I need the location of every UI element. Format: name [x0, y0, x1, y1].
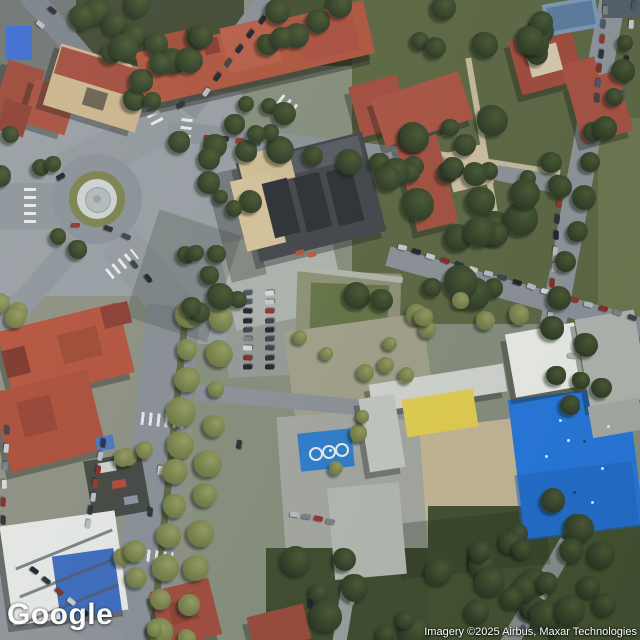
- tree: [239, 190, 262, 213]
- person: [567, 439, 570, 442]
- tree: [163, 494, 187, 518]
- tree: [465, 599, 490, 624]
- tree: [177, 47, 203, 73]
- tree: [235, 140, 257, 162]
- tree: [546, 366, 566, 386]
- car: [242, 365, 251, 370]
- car: [242, 318, 251, 323]
- tree: [167, 431, 195, 459]
- car: [603, 6, 608, 15]
- tree: [469, 541, 490, 562]
- tree: [187, 520, 214, 547]
- tree: [68, 240, 87, 259]
- tree: [5, 307, 27, 329]
- tree: [293, 330, 307, 344]
- tree: [605, 88, 623, 106]
- person: [601, 467, 604, 470]
- person: [573, 491, 576, 494]
- tree: [400, 124, 428, 152]
- person: [329, 449, 332, 452]
- car: [3, 461, 8, 470]
- tree: [303, 146, 323, 166]
- court-circle-3: [335, 443, 349, 457]
- tree: [442, 157, 464, 179]
- tree: [144, 92, 161, 109]
- google-logo[interactable]: Google: [7, 598, 113, 632]
- person: [559, 419, 562, 422]
- tree: [329, 461, 343, 475]
- imagery-attribution: Imagery ©2025 Airbus, Maxar Technologies: [424, 626, 637, 638]
- tree: [152, 554, 179, 581]
- car: [242, 355, 251, 360]
- tree: [271, 27, 292, 48]
- tree: [207, 245, 225, 263]
- tree: [306, 9, 330, 33]
- car: [631, 1, 636, 10]
- car: [147, 507, 152, 516]
- car: [264, 290, 273, 295]
- tree: [193, 483, 218, 508]
- tree: [547, 286, 572, 311]
- tree: [209, 307, 232, 330]
- car: [264, 337, 273, 342]
- tree: [463, 162, 486, 185]
- person: [545, 455, 548, 458]
- car: [598, 49, 604, 59]
- tree: [69, 4, 95, 30]
- tree: [516, 26, 545, 55]
- tree: [341, 574, 368, 601]
- car: [629, 19, 634, 28]
- crosswalk: [24, 188, 36, 224]
- tree: [356, 410, 369, 423]
- tree: [378, 357, 394, 373]
- tree: [541, 488, 565, 512]
- tree: [273, 102, 296, 125]
- tree: [320, 347, 333, 360]
- tree: [555, 251, 576, 272]
- car: [90, 492, 96, 501]
- tree: [588, 541, 615, 568]
- tree: [560, 395, 579, 414]
- car: [242, 346, 251, 351]
- tree: [114, 449, 131, 466]
- tree: [174, 367, 200, 393]
- car: [289, 511, 298, 517]
- tree: [126, 567, 147, 588]
- tree: [166, 397, 196, 427]
- tree: [50, 228, 67, 245]
- tree: [475, 566, 506, 597]
- roundabout-center: [93, 195, 101, 203]
- person: [607, 425, 610, 428]
- tree: [187, 245, 203, 261]
- car: [85, 519, 91, 529]
- car: [264, 355, 273, 360]
- tree: [591, 378, 611, 398]
- tree: [572, 372, 589, 389]
- tree: [476, 311, 495, 330]
- tree: [537, 572, 559, 594]
- tree: [168, 131, 190, 153]
- tree: [198, 147, 221, 170]
- tree: [357, 364, 374, 381]
- tree: [580, 152, 600, 172]
- tree: [593, 593, 615, 615]
- tree: [559, 538, 583, 562]
- tree: [501, 587, 523, 609]
- tarp-blue-corner: [6, 26, 32, 60]
- car: [264, 328, 273, 333]
- car: [264, 300, 273, 305]
- tree: [224, 114, 245, 135]
- car: [71, 223, 80, 228]
- car: [2, 479, 7, 488]
- tree: [611, 59, 634, 82]
- tree: [399, 367, 414, 382]
- person: [583, 440, 586, 443]
- tree: [574, 333, 597, 356]
- car: [554, 231, 559, 240]
- car: [100, 438, 105, 447]
- tree: [375, 166, 401, 192]
- car: [235, 439, 241, 449]
- building-bottom-2: [247, 604, 312, 640]
- car: [242, 337, 251, 342]
- person: [591, 501, 594, 504]
- tree: [206, 340, 233, 367]
- tree: [383, 337, 396, 350]
- tree: [45, 156, 61, 172]
- tree: [466, 187, 495, 216]
- tree: [207, 283, 234, 310]
- tree: [2, 126, 19, 143]
- tree: [464, 216, 495, 247]
- satellite-map-canvas[interactable]: Google Imagery ©2025 Airbus, Maxar Techn…: [0, 0, 640, 640]
- court-circle-1: [309, 447, 323, 461]
- tree: [247, 125, 265, 143]
- tree: [150, 589, 171, 610]
- tree: [441, 119, 459, 137]
- car: [557, 199, 562, 208]
- tree: [477, 105, 508, 136]
- car: [5, 425, 10, 434]
- car: [95, 465, 101, 474]
- tree: [147, 621, 162, 636]
- tree: [238, 96, 254, 112]
- tree: [149, 53, 171, 75]
- tree: [402, 188, 434, 220]
- tree: [578, 576, 600, 598]
- tree: [452, 292, 470, 310]
- car: [242, 309, 251, 314]
- tree: [226, 200, 243, 217]
- tree: [548, 175, 571, 198]
- tree: [203, 415, 224, 436]
- tree: [540, 152, 561, 173]
- tree: [110, 34, 138, 62]
- car: [242, 328, 251, 333]
- tree: [200, 266, 219, 285]
- tree: [414, 308, 433, 327]
- car: [1, 516, 6, 525]
- tree: [509, 304, 530, 325]
- tree: [472, 32, 498, 58]
- tree: [190, 25, 213, 48]
- tree: [555, 595, 585, 625]
- tree: [512, 540, 531, 559]
- tree: [208, 381, 224, 397]
- tree: [370, 289, 393, 312]
- court-circle-2: [322, 445, 336, 459]
- tree: [510, 179, 540, 209]
- tree: [540, 316, 563, 339]
- tree: [422, 278, 441, 297]
- tree: [177, 339, 198, 360]
- car: [264, 365, 273, 370]
- tree: [343, 282, 370, 309]
- car: [264, 318, 273, 323]
- tree: [156, 523, 181, 548]
- tree: [181, 297, 201, 317]
- car: [595, 93, 600, 102]
- tree: [129, 69, 153, 93]
- tree: [281, 546, 310, 575]
- tree: [594, 116, 617, 139]
- tree: [425, 558, 452, 585]
- tree: [194, 450, 222, 478]
- tree: [572, 185, 597, 210]
- car: [4, 443, 9, 452]
- tree: [376, 625, 395, 640]
- car: [264, 309, 273, 314]
- tree: [310, 600, 342, 632]
